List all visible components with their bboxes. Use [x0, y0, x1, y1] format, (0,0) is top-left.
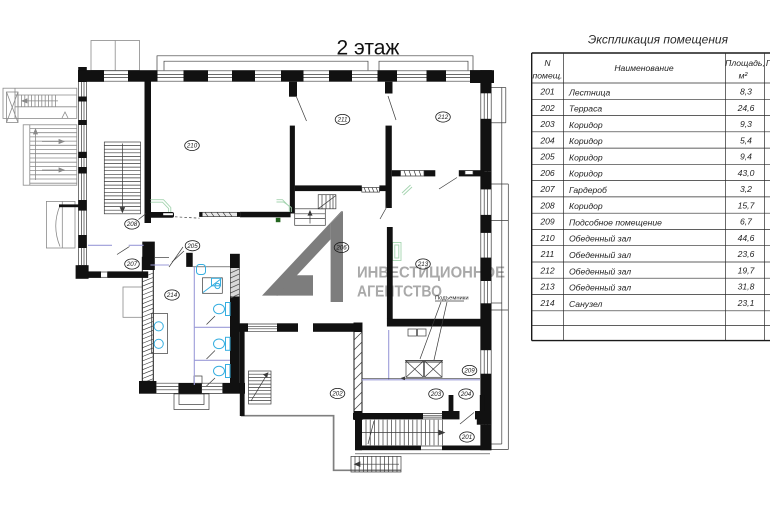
svg-text:207: 207 — [539, 184, 556, 194]
svg-text:Коридор: Коридор — [569, 120, 603, 130]
svg-text:213: 213 — [417, 261, 429, 268]
svg-text:9,3: 9,3 — [740, 119, 752, 129]
svg-text:203: 203 — [430, 391, 442, 398]
svg-text:208: 208 — [126, 221, 138, 228]
svg-text:Санузел: Санузел — [569, 299, 603, 309]
svg-text:201: 201 — [461, 434, 472, 441]
svg-text:Подъемники: Подъемники — [435, 296, 469, 302]
svg-text:Обеденный зал: Обеденный зал — [569, 234, 631, 244]
svg-text:214: 214 — [166, 292, 178, 299]
svg-text:Терраса: Терраса — [569, 104, 602, 114]
svg-text:207: 207 — [126, 261, 138, 268]
svg-text:206: 206 — [335, 245, 347, 252]
svg-text:помещ.: помещ. — [533, 71, 563, 81]
svg-text:209: 209 — [539, 217, 555, 227]
svg-text:П: П — [766, 58, 770, 68]
svg-text:АГЕНТСТВО: АГЕНТСТВО — [357, 284, 442, 301]
svg-text:3,2: 3,2 — [740, 184, 752, 194]
svg-text:Наименование: Наименование — [614, 63, 674, 73]
svg-text:31,8: 31,8 — [738, 282, 755, 292]
svg-text:2 этаж: 2 этаж — [337, 37, 400, 60]
svg-text:205: 205 — [539, 152, 555, 162]
svg-text:Обеденный зал: Обеденный зал — [569, 250, 631, 260]
svg-text:Лестница: Лестница — [568, 87, 611, 97]
svg-text:204: 204 — [460, 391, 472, 398]
svg-text:Коридор: Коридор — [569, 201, 603, 211]
svg-text:209: 209 — [463, 368, 475, 375]
svg-text:212: 212 — [539, 266, 555, 276]
svg-text:202: 202 — [539, 103, 555, 113]
svg-text:24,6: 24,6 — [737, 103, 755, 113]
svg-text:213: 213 — [539, 282, 555, 292]
svg-text:Площадь,: Площадь, — [725, 58, 765, 68]
svg-text:202: 202 — [331, 391, 343, 398]
svg-text:8,3: 8,3 — [740, 87, 752, 97]
svg-text:210: 210 — [186, 143, 198, 150]
svg-text:43,0: 43,0 — [738, 168, 755, 178]
svg-text:Обеденный зал: Обеденный зал — [569, 266, 631, 276]
svg-text:5,4: 5,4 — [740, 135, 752, 145]
svg-text:Подсобное помещение: Подсобное помещение — [569, 218, 662, 228]
svg-text:212: 212 — [437, 114, 449, 121]
svg-text:Коридор: Коридор — [569, 136, 603, 146]
svg-text:Коридор: Коридор — [569, 152, 603, 162]
svg-text:9,4: 9,4 — [740, 152, 752, 162]
svg-text:Гардероб: Гардероб — [569, 185, 608, 195]
svg-text:15,7: 15,7 — [738, 200, 756, 210]
svg-text:211: 211 — [337, 117, 348, 124]
svg-text:210: 210 — [539, 233, 555, 243]
svg-text:Экспликация помещения: Экспликация помещения — [588, 35, 728, 47]
svg-text:N: N — [544, 58, 551, 68]
svg-text:203: 203 — [539, 119, 555, 129]
svg-text:Обеденный зал: Обеденный зал — [569, 283, 631, 293]
svg-text:211: 211 — [540, 249, 555, 259]
svg-text:201: 201 — [539, 87, 555, 97]
svg-text:205: 205 — [186, 243, 198, 250]
svg-text:208: 208 — [539, 200, 555, 210]
svg-text:44,6: 44,6 — [738, 233, 755, 243]
svg-text:Коридор: Коридор — [569, 169, 603, 179]
svg-text:214: 214 — [539, 298, 555, 308]
svg-text:206: 206 — [539, 168, 555, 178]
svg-text:м²: м² — [739, 71, 749, 81]
svg-text:23,1: 23,1 — [737, 298, 755, 308]
svg-text:19,7: 19,7 — [738, 266, 756, 276]
svg-text:204: 204 — [539, 135, 555, 145]
svg-text:23,6: 23,6 — [737, 249, 755, 259]
svg-text:6,7: 6,7 — [740, 217, 753, 227]
